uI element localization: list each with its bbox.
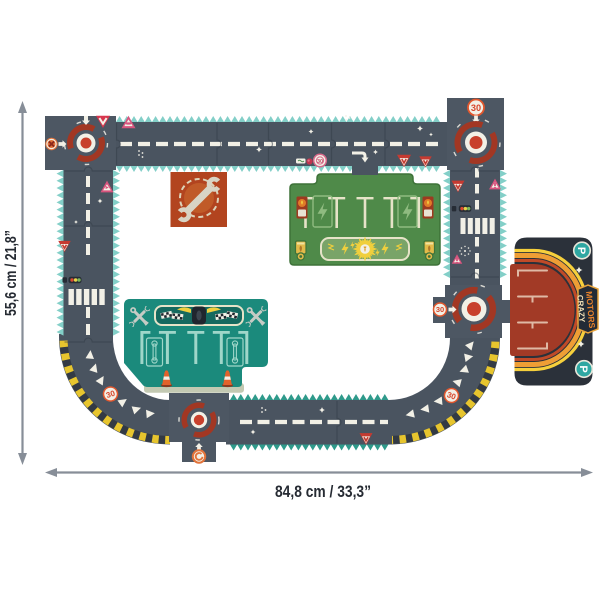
- svg-text:55,6 cm / 21,8”: 55,6 cm / 21,8”: [3, 230, 20, 316]
- svg-text:30: 30: [471, 103, 481, 113]
- svg-text:84,8 cm / 33,3”: 84,8 cm / 33,3”: [275, 482, 371, 501]
- svg-text:P: P: [575, 247, 587, 254]
- svg-text:P: P: [577, 365, 589, 372]
- svg-text:30: 30: [317, 159, 323, 165]
- svg-text:30: 30: [436, 305, 444, 314]
